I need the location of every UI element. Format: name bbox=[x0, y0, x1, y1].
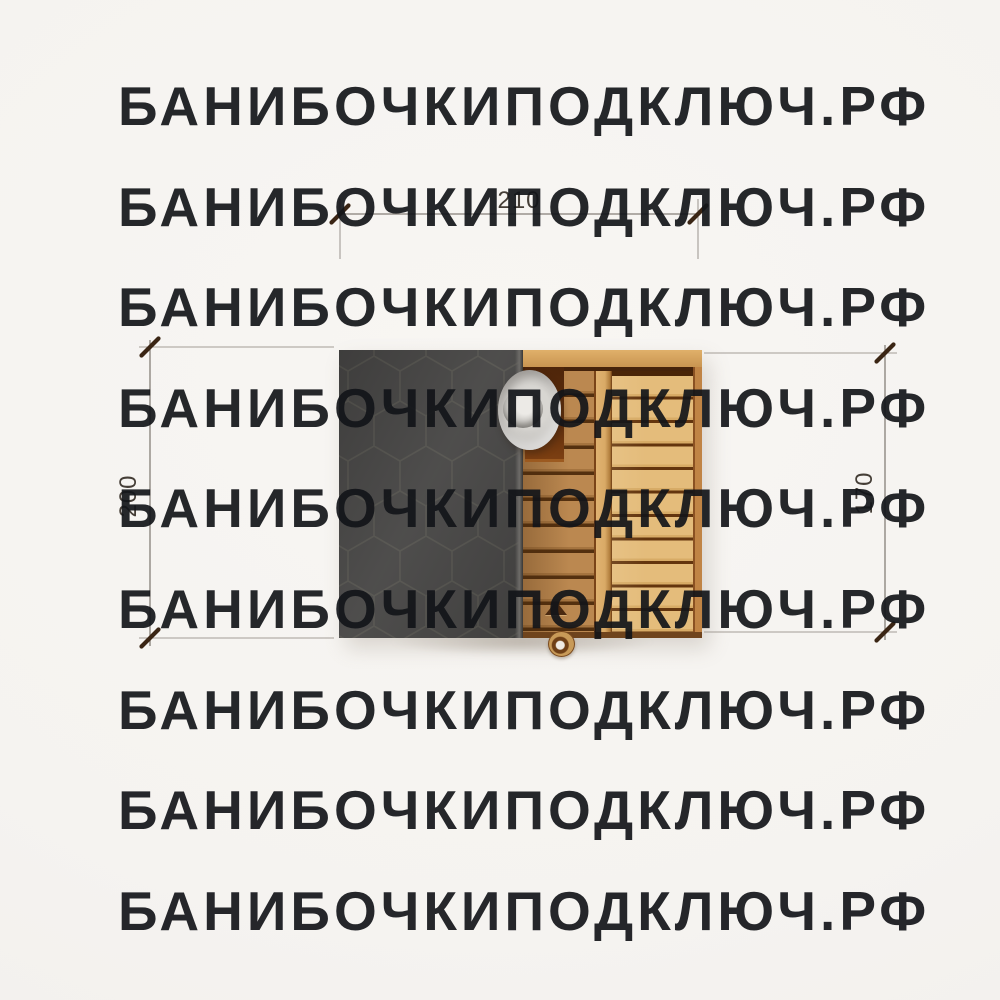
deck-planks-right bbox=[612, 371, 695, 632]
dimension-height-left-label: 200 bbox=[115, 474, 142, 517]
product-drawing-canvas: 210 200 170 БАНИБОЧКИПОДКЛЮЧ.РФБАНИБОЧКИ… bbox=[0, 0, 1000, 1000]
watermark-text: БАНИБОЧКИПОДКЛЮЧ.РФ bbox=[118, 778, 930, 842]
watermark-text: БАНИБОЧКИПОДКЛЮЧ.РФ bbox=[118, 74, 930, 138]
door-handle-knob bbox=[548, 631, 575, 657]
dimension-height-right-label: 170 bbox=[851, 471, 878, 514]
watermark-text: БАНИБОЧКИПОДКЛЮЧ.РФ bbox=[118, 175, 930, 239]
dimension-right: 170 bbox=[704, 345, 897, 641]
roof-shingles bbox=[339, 350, 523, 638]
right-wall-edge bbox=[693, 367, 702, 638]
dimension-width-label: 210 bbox=[497, 187, 540, 214]
dimension-left: 200 bbox=[115, 339, 334, 647]
watermark-text: БАНИБОЧКИПОДКЛЮЧ.РФ bbox=[118, 879, 930, 943]
roof-shading bbox=[339, 350, 523, 638]
deck-divider-board bbox=[594, 371, 612, 632]
dimension-top: 210 bbox=[332, 187, 707, 259]
watermark-text: БАНИБОЧКИПОДКЛЮЧ.РФ bbox=[118, 275, 930, 339]
chimney-cap-center bbox=[503, 390, 543, 428]
watermark-text: БАНИБОЧКИПОДКЛЮЧ.РФ bbox=[118, 678, 930, 742]
sauna-top-view bbox=[339, 350, 702, 638]
vent-triangle-marker bbox=[545, 601, 567, 615]
